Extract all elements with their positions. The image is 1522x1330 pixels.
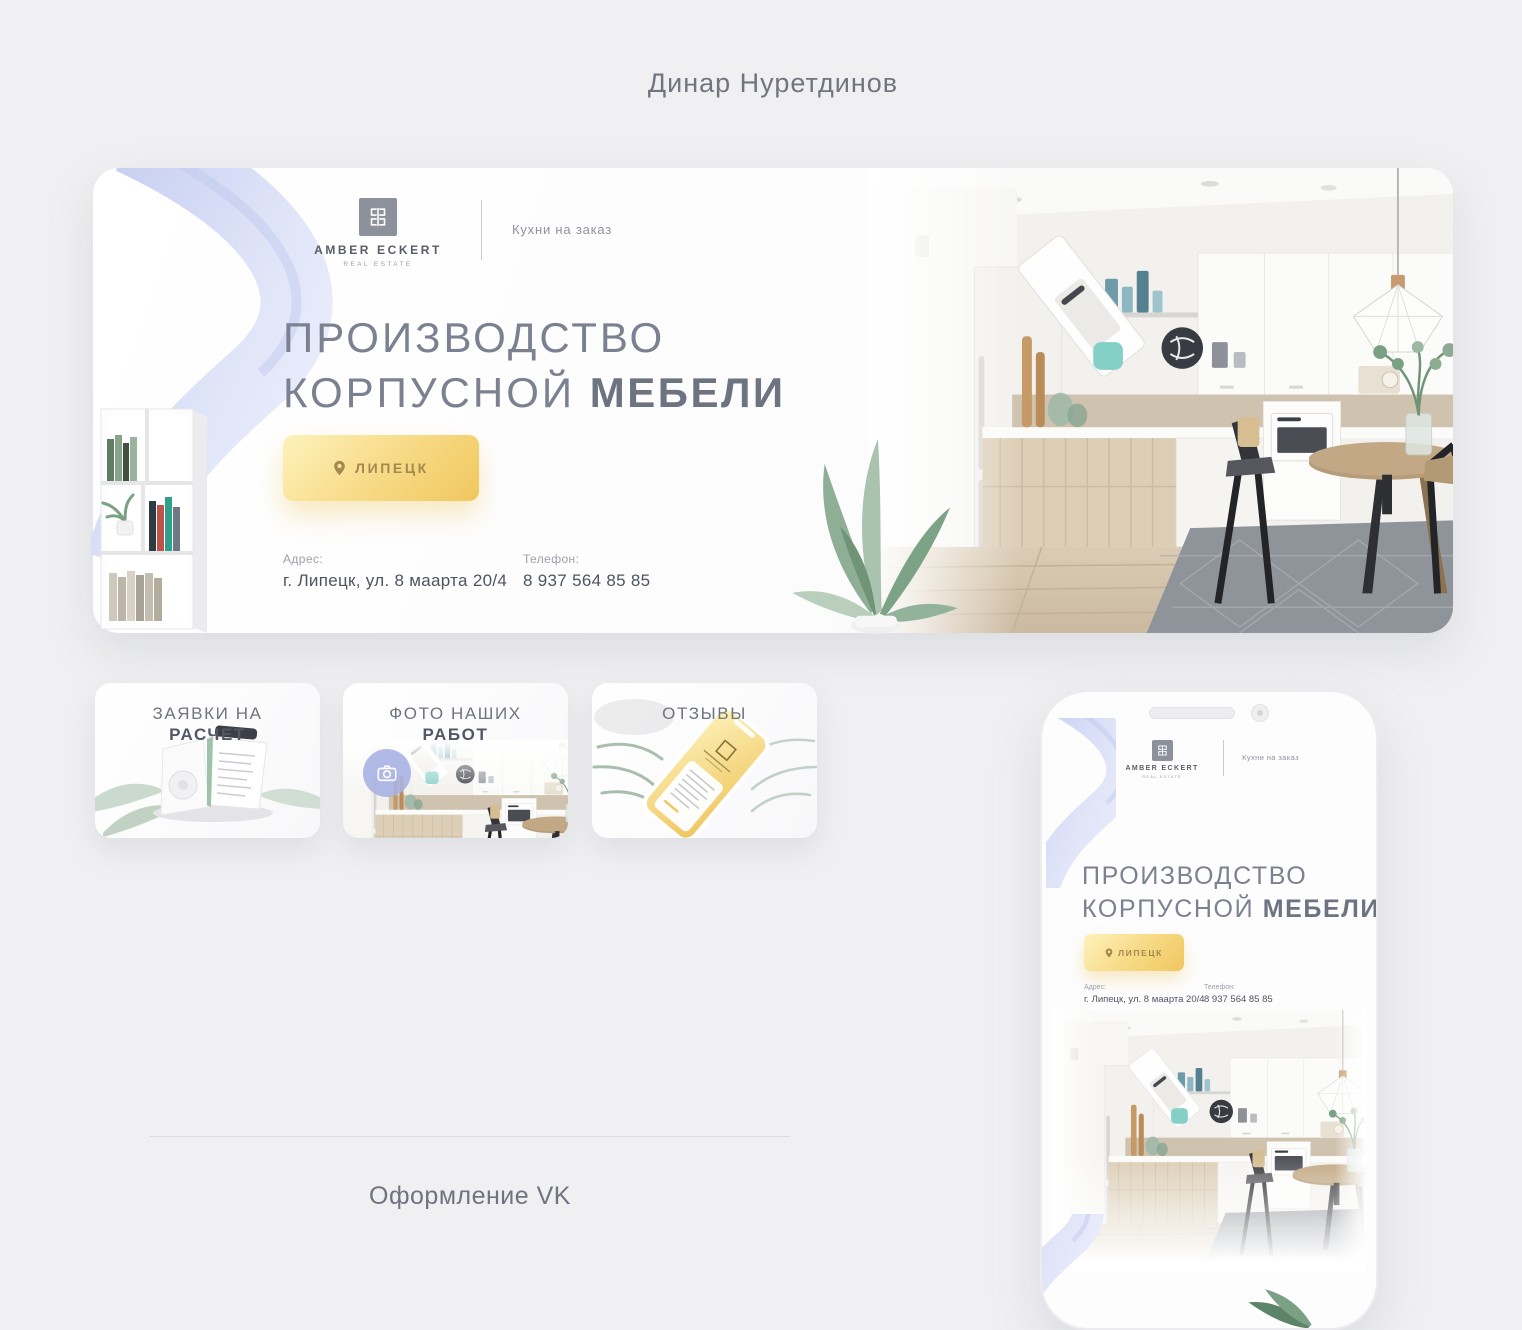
preview-location-button-label: ЛИПЕЦК xyxy=(1118,948,1163,958)
preview-brand-header: AMBER ECKERT REAL ESTATE Кухни на заказ xyxy=(1042,740,1376,779)
community-cover-banner: AMBER ECKERT REAL ESTATE Кухни на заказ … xyxy=(93,168,1453,633)
address-value: г. Липецк, ул. 8 маарта 20/4 xyxy=(283,571,507,591)
preview-location-pin-icon xyxy=(1105,948,1113,958)
camera-badge xyxy=(363,749,411,797)
preview-brand-divider xyxy=(1223,740,1224,776)
preview-location-button: ЛИПЕЦК xyxy=(1084,934,1184,971)
brand-subtitle: REAL ESTATE xyxy=(303,261,453,268)
preview-address-value: г. Липецк, ул. 8 маарта 20/4 xyxy=(1084,994,1205,1005)
brand-category: Кухни на заказ xyxy=(512,198,612,237)
preview-phone-value: 8 937 564 85 85 xyxy=(1204,994,1273,1005)
bookshelf-decoration-icon xyxy=(95,405,213,633)
footer-caption: Оформление VK xyxy=(150,1182,790,1211)
headline-line2-bold: МЕБЕЛИ xyxy=(590,369,786,416)
preview-headline-line1: ПРОИЗВОДСТВО xyxy=(1082,860,1378,893)
preview-leaf-icon xyxy=(1242,1280,1318,1330)
plant-decoration-icon xyxy=(781,376,971,638)
preview-brand-category: Кухни на заказ xyxy=(1242,740,1299,762)
brand-logo-icon xyxy=(359,198,397,236)
location-button-label: ЛИПЕЦК xyxy=(355,460,429,476)
camera-icon xyxy=(376,762,398,784)
preview-headline-line2: КОРПУСНОЙ xyxy=(1082,895,1254,923)
card-calc-line1: ЗАЯВКИ НА xyxy=(152,704,262,723)
location-button[interactable]: ЛИПЕЦК xyxy=(283,435,479,501)
preview-brand-subtitle: REAL ESTATE xyxy=(1119,774,1205,779)
preview-bottom-ribbon-icon xyxy=(1042,1214,1108,1330)
phone-camera-icon xyxy=(1251,704,1269,722)
preview-address-label: Адрес: xyxy=(1084,984,1205,991)
phone-label: Телефон: xyxy=(523,552,650,566)
footer-divider xyxy=(150,1136,790,1137)
menu-card-calc-request[interactable]: ЗАЯВКИ НА РАСЧЕТ xyxy=(95,683,320,838)
headline-line1: ПРОИЗВОДСТВО xyxy=(283,310,786,365)
preview-brand-logo-icon xyxy=(1152,740,1173,761)
menu-card-reviews[interactable]: ОТЗЫВЫ xyxy=(592,683,817,838)
preview-headline-line2-bold: МЕБЕЛИ xyxy=(1263,895,1378,923)
address-label: Адрес: xyxy=(283,552,507,566)
brand-divider xyxy=(481,200,482,260)
phone-speaker xyxy=(1149,707,1235,719)
phone-value: 8 937 564 85 85 xyxy=(523,571,650,591)
brand-header: AMBER ECKERT REAL ESTATE Кухни на заказ xyxy=(303,198,612,268)
page-title: Динар Нуретдинов xyxy=(93,68,1453,99)
headline-line2: КОРПУСНОЙ xyxy=(283,369,575,416)
location-pin-icon xyxy=(333,460,346,476)
card-works-line1: ФОТО НАШИХ xyxy=(389,704,521,723)
banner-headline: ПРОИЗВОДСТВО КОРПУСНОЙ МЕБЕЛИ xyxy=(283,310,786,420)
card-calc-line2: РАСЧЕТ xyxy=(95,724,320,745)
phone-mockup: AMBER ECKERT REAL ESTATE Кухни на заказ … xyxy=(1040,690,1378,1330)
preview-phone-label: Телефон: xyxy=(1204,984,1273,991)
preview-brand-name: AMBER ECKERT xyxy=(1119,765,1205,772)
card-reviews-line1: ОТЗЫВЫ xyxy=(662,704,747,723)
preview-headline: ПРОИЗВОДСТВО КОРПУСНОЙ МЕБЕЛИ xyxy=(1082,860,1378,926)
menu-card-our-works[interactable]: ФОТО НАШИХ РАБОТ xyxy=(343,683,568,838)
card-works-line2: РАБОТ xyxy=(343,724,568,745)
brand-name: AMBER ECKERT xyxy=(303,243,453,257)
